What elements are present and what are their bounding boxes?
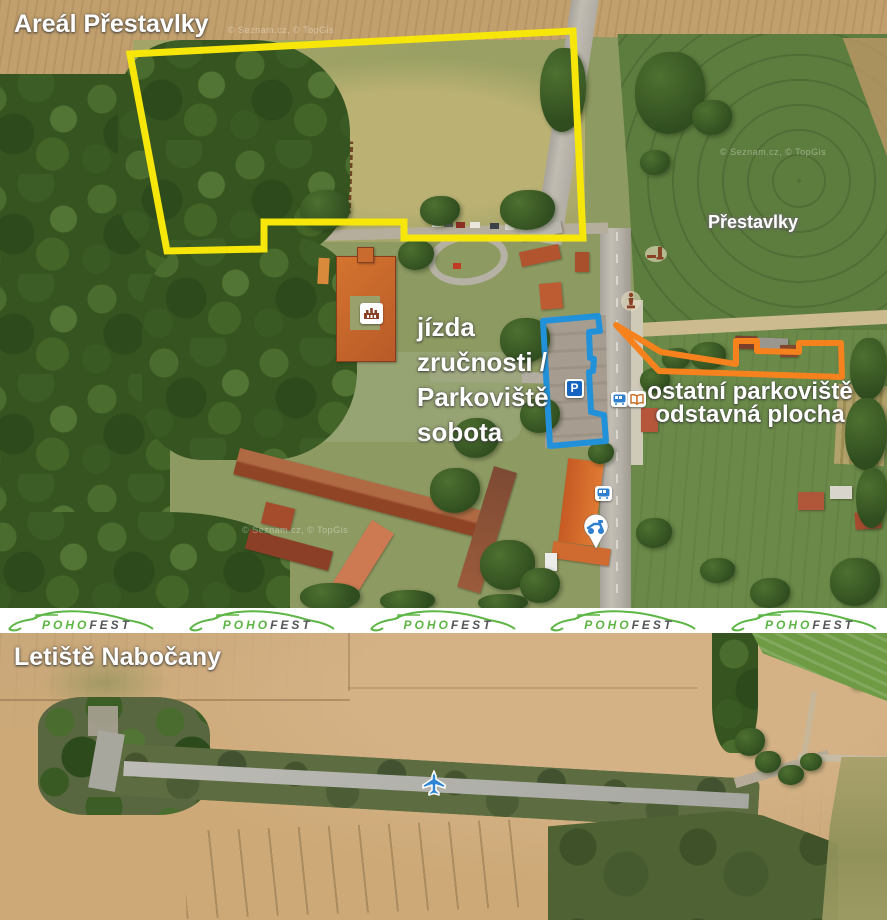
memorial-icon	[644, 243, 668, 263]
tractor-rows	[184, 819, 527, 919]
terrain-dark-field-se	[548, 811, 838, 920]
tree	[800, 753, 822, 771]
map-watermark: © Seznam.cz, © TopGis	[228, 25, 334, 35]
tree	[380, 590, 435, 608]
scooter-pin-icon	[582, 514, 610, 550]
building	[539, 282, 563, 310]
pohofest-logo: POHOFEST	[187, 609, 339, 633]
top-aerial-map: P	[0, 0, 887, 608]
farm-shed	[780, 345, 798, 357]
country-road	[801, 691, 818, 759]
other-parking-line: ostatní parkoviště	[628, 380, 872, 403]
building	[575, 252, 589, 272]
parking-icon: P	[565, 379, 584, 398]
other-parking-line: odstavná plocha	[628, 403, 872, 426]
brand-fest: FEST	[812, 618, 855, 632]
tree	[300, 583, 360, 608]
pohofest-logo: POHOFEST	[368, 609, 520, 633]
other-parking-label: ostatní parkoviště odstavná plocha	[628, 380, 872, 426]
pohofest-logo: POHOFEST	[6, 609, 158, 633]
terrain-right-strip	[822, 757, 887, 920]
pohofest-banner: POHOFEST POHOFEST POHOFEST POHOFEST POHO…	[0, 608, 887, 633]
building	[830, 486, 852, 499]
tree	[856, 468, 887, 528]
brand-poho: POHO	[404, 618, 451, 632]
brand-fest: FEST	[270, 618, 313, 632]
brand-fest: FEST	[632, 618, 675, 632]
pohofest-logo: POHOFEST	[548, 609, 700, 633]
building	[519, 244, 561, 267]
tree	[478, 594, 528, 608]
tree	[778, 765, 804, 785]
top-map-title: Areál Přestavlky	[14, 10, 209, 39]
skill-parking-label: jízda zručnosti / Parkoviště sobota	[417, 310, 549, 450]
brand-poho: POHO	[584, 618, 631, 632]
field-boundary	[348, 687, 698, 689]
map-watermark: © Seznam.cz, © TopGis	[720, 147, 826, 157]
pohofest-logo: POHOFEST	[729, 609, 881, 633]
skill-line: zručnosti /	[417, 345, 549, 380]
transit-stop-icon	[595, 486, 612, 501]
brand-poho: POHO	[42, 618, 89, 632]
field-boundary	[348, 633, 350, 691]
airplane-icon	[422, 770, 446, 796]
bus-vehicle	[317, 258, 329, 285]
bottom-aerial-map: Letiště Nabočany	[0, 633, 887, 920]
car	[470, 222, 480, 228]
car	[456, 222, 465, 228]
map-watermark: © Seznam.cz, © TopGis	[242, 525, 348, 535]
infographic-map: P	[0, 0, 887, 920]
manor-tower	[357, 247, 374, 263]
tree	[430, 468, 480, 513]
terrain-green-field-ne	[752, 633, 887, 701]
building	[798, 492, 824, 510]
chateau-icon	[360, 303, 383, 324]
farm-shed	[735, 336, 757, 350]
brand-fest: FEST	[451, 618, 494, 632]
bottom-map-title: Letiště Nabočany	[14, 643, 221, 672]
skill-line: Parkoviště	[417, 380, 549, 415]
brand-poho: POHO	[765, 618, 812, 632]
car	[490, 223, 499, 229]
parking-letter: P	[567, 381, 582, 396]
bus-stop-icon	[611, 392, 628, 407]
brand-fest: FEST	[89, 618, 132, 632]
car	[453, 263, 461, 269]
skill-line: sobota	[417, 415, 549, 450]
skill-line: jízda	[417, 310, 549, 345]
brand-poho: POHO	[223, 618, 270, 632]
statue-icon	[620, 289, 642, 313]
village-label: Přestavlky	[708, 212, 798, 233]
